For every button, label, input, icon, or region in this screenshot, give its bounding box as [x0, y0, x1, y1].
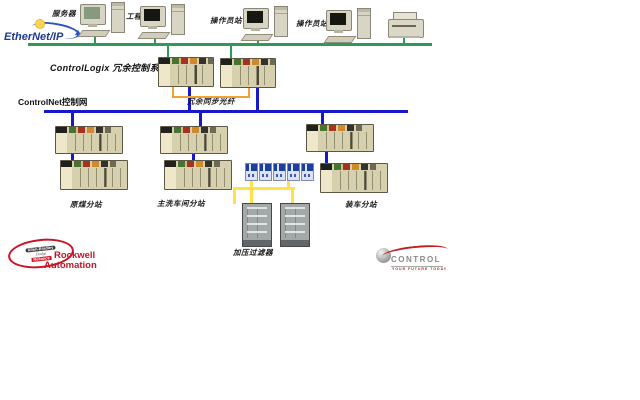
tower-icon [111, 2, 125, 33]
device-link-drop2 [291, 189, 294, 203]
substation-right-rack1-icon [306, 124, 374, 152]
automation-word: Automation [44, 261, 97, 271]
screen [247, 11, 263, 23]
controlnet-label: ControlNet控制网 [18, 98, 87, 107]
operator1-computer-icon [243, 8, 291, 44]
monitor-icon [326, 10, 352, 31]
controllogix-system-label: ControlLogix 冗余控制系统 [50, 64, 168, 74]
monitor-icon [243, 8, 269, 29]
printer-icon [388, 12, 424, 39]
controlnet-bus [44, 110, 408, 113]
filter-cabinet2-icon [280, 203, 310, 247]
rack-link-right [325, 150, 328, 164]
monitor-icon [140, 6, 166, 27]
substation-left-rack1-icon [55, 126, 123, 154]
substation-middle-rack1-icon [160, 126, 228, 154]
keyboard-icon [138, 32, 171, 39]
substation-right-label: 装车分站 [345, 201, 377, 209]
drive-unit-icon [245, 163, 258, 181]
drive-unit-row [245, 163, 314, 181]
rockwell-automation-logo: Allen-Bradley Dodge Reliance Rockwell Au… [8, 238, 118, 276]
substation-middle-label: 主洗车间分站 [157, 200, 205, 208]
controlnet-drop-middle [199, 113, 202, 126]
controllogix-rack1-icon [158, 57, 214, 87]
tower-icon [171, 4, 185, 35]
fiber-sync-label: 冗余同步光纤 [187, 98, 235, 106]
server-label: 服务器 [52, 10, 76, 18]
controllogix-rack2-icon [220, 58, 276, 88]
filter-label: 加压过滤器 [233, 249, 273, 257]
operator2-computer-icon [326, 10, 374, 46]
operator-station1-label: 操作员站 [210, 17, 242, 25]
control-logo: CONTROL YOUR FUTURE TODAY [376, 246, 456, 276]
monitor-stand [88, 24, 97, 27]
printer-output-slot [392, 25, 416, 27]
control-logo-tagline: YOUR FUTURE TODAY [392, 268, 447, 272]
drive-unit-icon [287, 163, 300, 181]
printer-tray [390, 36, 420, 38]
engineer-computer-icon [140, 6, 188, 42]
keyboard-icon [78, 30, 111, 37]
sun-globe-icon [35, 19, 45, 29]
device-link-drop1 [250, 189, 253, 203]
keyboard-icon [241, 34, 274, 41]
keyboard-icon [324, 36, 357, 43]
drive-unit-icon [259, 163, 272, 181]
monitor-icon [80, 4, 106, 25]
substation-left-rack2-icon [60, 160, 128, 190]
server-computer-icon [80, 4, 128, 40]
screen [84, 7, 100, 19]
device-link-horizontal [233, 187, 295, 190]
device-link-tail [233, 187, 236, 204]
tower-icon [357, 8, 371, 39]
operator-station2-label: 操作员站 [296, 20, 328, 28]
screen [144, 9, 160, 21]
fiber-sync-bracket [172, 87, 250, 98]
diagram-canvas: EtherNet/IP 服务器 工程师站 操作员站 操作员站 ControlLo… [0, 0, 640, 400]
controlnet-drop-clx2 [256, 86, 259, 110]
drive-unit-icon [301, 163, 314, 181]
monitor-stand [251, 28, 260, 31]
ethernet-ip-logo: EtherNet/IP [4, 19, 88, 43]
drive-unit-icon [273, 163, 286, 181]
control-logo-name: CONTROL [391, 256, 441, 264]
tower-icon [274, 6, 288, 37]
substation-left-label: 原煤分站 [70, 201, 102, 209]
monitor-stand [334, 30, 343, 33]
substation-middle-rack2-icon [164, 160, 232, 190]
controlnet-drop-left [71, 113, 74, 126]
ethernet-ip-logo-text: EtherNet/IP [4, 32, 63, 43]
filter-cabinet1-icon [242, 203, 272, 247]
screen [330, 13, 346, 25]
substation-right-rack2-icon [320, 163, 388, 193]
monitor-stand [148, 26, 157, 29]
